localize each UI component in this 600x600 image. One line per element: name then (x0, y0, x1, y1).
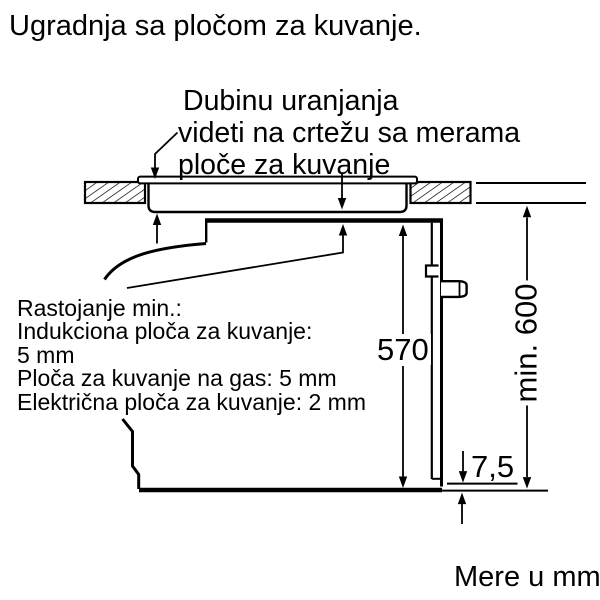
clearance-note-line5: Električna ploča za kuvanje: 2 mm (17, 391, 366, 414)
dim-75-label: 7,5 (471, 451, 514, 482)
clearance-note: Rastojanje min.: Indukciona ploča za kuv… (17, 297, 366, 414)
oven-knob (441, 281, 467, 297)
clearance-note-line2: Indukciona ploča za kuvanje: (17, 320, 366, 343)
depth-note-line2: videti na crtežu sa merama (178, 117, 520, 149)
worktop-left-section (85, 182, 145, 203)
clearance-note-line1: Rastojanje min.: (17, 297, 366, 320)
clearance-note-line4: Ploča za kuvanje na gas: 5 mm (17, 367, 366, 390)
depth-note-line1: Dubinu uranjanja (178, 85, 520, 117)
clearance-arrow-left (153, 214, 161, 244)
cooktop-body (149, 182, 407, 212)
dim-75-lines (458, 451, 467, 524)
depth-note-line3: ploče za kuvanje (178, 149, 520, 181)
worktop-right-section (411, 182, 471, 203)
oven-wall-notch (426, 266, 439, 277)
units-note: Mere u mm (454, 563, 600, 592)
installation-diagram-page: Ugradnja sa pločom za kuvanje. Dubinu ur… (0, 0, 600, 600)
page-title: Ugradnja sa pločom za kuvanje. (9, 12, 422, 41)
depth-note: Dubinu uranjanja videti na crtežu sa mer… (178, 85, 520, 181)
clearance-note-line3: 5 mm (17, 344, 366, 367)
dim-570-label: 570 (375, 334, 431, 365)
depth-note-leader-arrow (151, 133, 178, 180)
dim-min600-label: min. 600 (511, 281, 542, 406)
worktop-edge-lines (476, 183, 586, 203)
clearance-leader-arrow (127, 224, 347, 288)
